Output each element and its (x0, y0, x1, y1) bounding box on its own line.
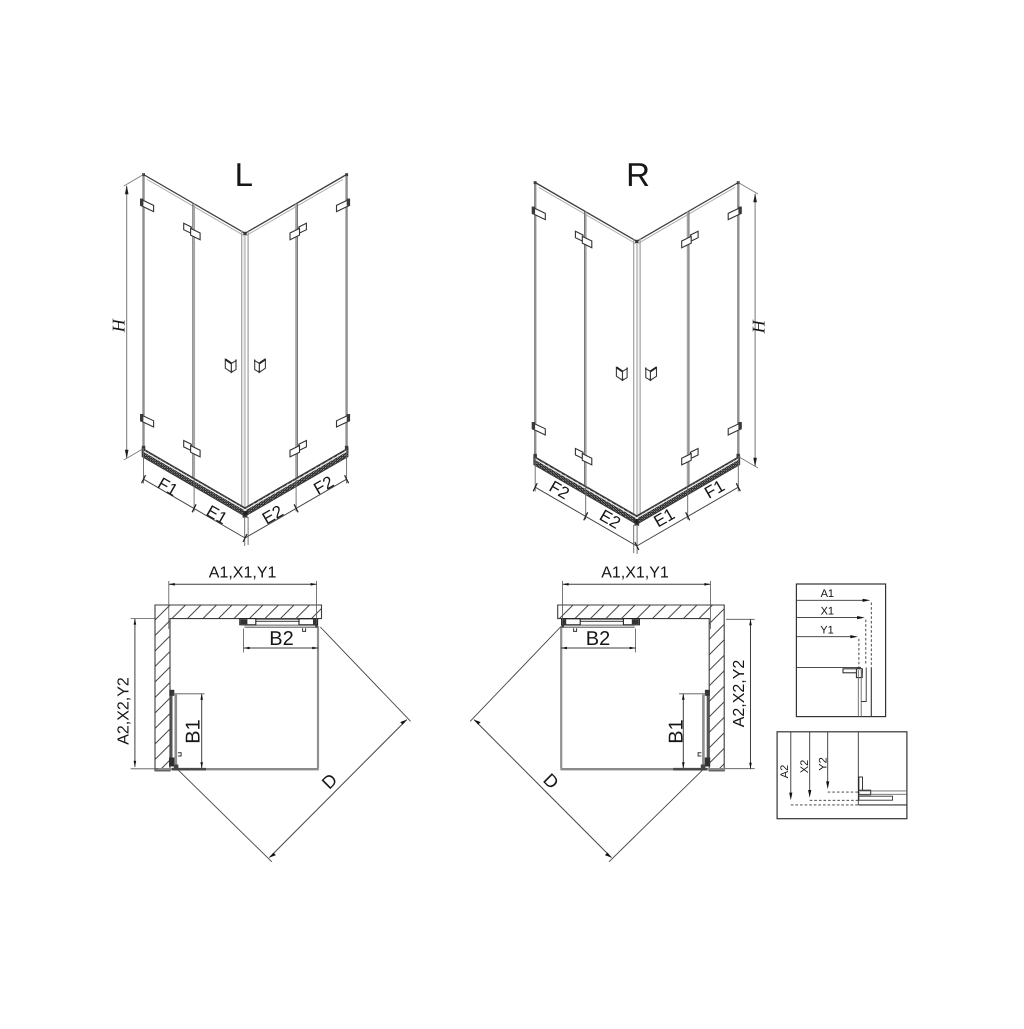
svg-text:A1,X1,Y1: A1,X1,Y1 (601, 564, 669, 581)
svg-text:A1,X1,Y1: A1,X1,Y1 (209, 564, 277, 581)
svg-text:Y1: Y1 (820, 624, 833, 636)
svg-text:F1: F1 (154, 474, 181, 500)
svg-text:A2,X2,Y2: A2,X2,Y2 (731, 660, 748, 728)
svg-text:L: L (235, 156, 253, 193)
svg-text:A2,X2,Y2: A2,X2,Y2 (115, 677, 132, 745)
svg-text:B1: B1 (183, 719, 205, 743)
svg-text:H: H (109, 318, 129, 333)
svg-text:D: D (539, 770, 562, 793)
svg-text:B2: B2 (586, 628, 610, 650)
svg-text:B1: B1 (665, 719, 687, 743)
svg-text:R: R (626, 156, 650, 193)
svg-text:A1: A1 (821, 588, 834, 600)
svg-text:A2: A2 (779, 765, 791, 778)
svg-text:X2: X2 (799, 760, 811, 773)
svg-text:B2: B2 (269, 628, 293, 650)
svg-text:X1: X1 (821, 605, 834, 617)
svg-text:H: H (749, 319, 769, 334)
svg-text:Y2: Y2 (817, 757, 829, 770)
